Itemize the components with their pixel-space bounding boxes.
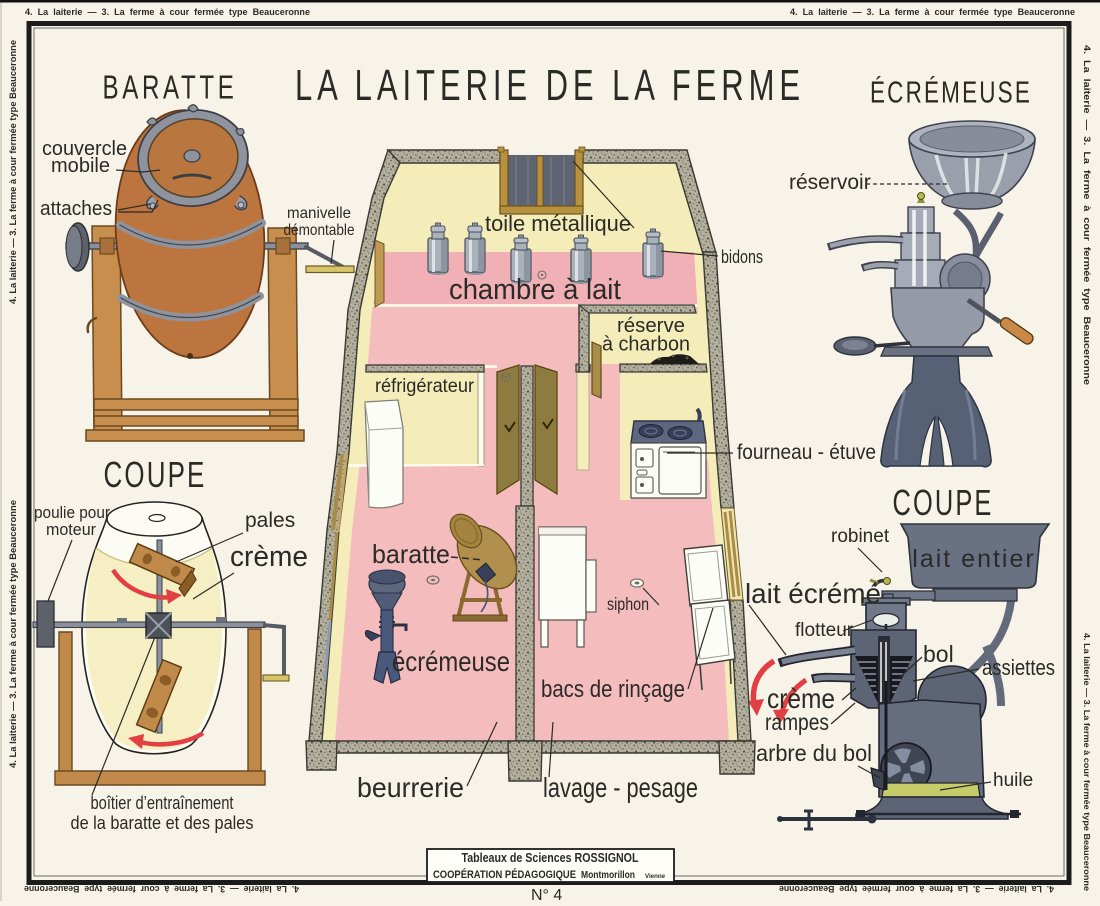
- svg-text:baratte: baratte: [372, 539, 450, 569]
- svg-text:pales: pales: [245, 509, 295, 532]
- svg-text:lavage - pesage: lavage - pesage: [543, 772, 698, 803]
- svg-text:boîtier d’entraînement: boîtier d’entraînement: [91, 793, 234, 813]
- svg-text:de la baratte et des pales: de la baratte et des pales: [71, 813, 254, 833]
- svg-text:4. La laiterie — 3. La ferme à: 4. La laiterie — 3. La ferme à cour ferm…: [1082, 633, 1091, 892]
- svg-text:manivelle: manivelle: [287, 205, 351, 222]
- svg-text:4. La laiterie — 3. La f: 4. La laiterie — 3. La ferme à cour ferm…: [779, 883, 1054, 894]
- svg-text:bol: bol: [923, 641, 954, 667]
- svg-text:COOPÉRATION PÉDAGOGIQUEMontmor: COOPÉRATION PÉDAGOGIQUEMontmorillonVienn…: [433, 868, 665, 881]
- svg-text:crème: crème: [230, 541, 308, 573]
- svg-text:robinet: robinet: [831, 526, 890, 547]
- svg-text:COUPE: COUPE: [893, 482, 994, 523]
- svg-text:lait écrémé: lait écrémé: [745, 578, 881, 609]
- svg-text:démontable: démontable: [284, 222, 355, 239]
- svg-text:COUPE: COUPE: [104, 454, 207, 495]
- svg-text:rampes: rampes: [765, 709, 829, 735]
- svg-text:attaches: attaches: [40, 198, 112, 220]
- svg-text:siphon: siphon: [607, 594, 649, 614]
- svg-text:N° 4: N° 4: [531, 887, 562, 901]
- svg-text:chambre à lait: chambre à lait: [449, 274, 621, 306]
- svg-text:4. La laiterie — 3. La f: 4. La laiterie — 3. La ferme à cour ferm…: [1081, 45, 1092, 385]
- svg-text:bidons: bidons: [721, 247, 763, 267]
- svg-text:réfrigérateur: réfrigérateur: [375, 375, 474, 397]
- svg-text:ÉCRÉMEUSE: ÉCRÉMEUSE: [870, 75, 1032, 110]
- svg-text:beurrerie: beurrerie: [357, 772, 464, 803]
- svg-text:réservoir: réservoir: [789, 171, 871, 194]
- svg-text:4. La laiterie — 3. La f: 4. La laiterie — 3. La ferme à cour ferm…: [25, 7, 310, 18]
- svg-text:moteur: moteur: [46, 520, 96, 539]
- svg-text:fourneau - étuve: fourneau - étuve: [737, 440, 876, 464]
- svg-text:toile métallique: toile métallique: [485, 211, 631, 236]
- svg-text:Tableaux de Sciences ROSSIGNOL: Tableaux de Sciences ROSSIGNOL: [462, 851, 639, 865]
- svg-text:huile: huile: [993, 770, 1033, 791]
- svg-text:mobile: mobile: [51, 155, 110, 177]
- svg-text:BARATTE: BARATTE: [103, 69, 238, 106]
- svg-text:4. La laiterie — 3. La ferme à: 4. La laiterie — 3. La ferme à cour ferm…: [8, 500, 19, 768]
- svg-text:bacs de rinçage: bacs de rinçage: [541, 676, 685, 703]
- svg-text:LA LAITERIE DE LA FERME: LA LAITERIE DE LA FERME: [295, 61, 805, 110]
- svg-text:assiettes: assiettes: [982, 655, 1055, 680]
- svg-text:4. La laiterie — 3. La ferme à: 4. La laiterie — 3. La ferme à cour ferm…: [8, 40, 19, 304]
- svg-text:4. La laiterie — 3. La f: 4. La laiterie — 3. La ferme à cour ferm…: [790, 7, 1075, 18]
- svg-text:arbre du bol: arbre du bol: [756, 740, 872, 766]
- svg-text:à charbon: à charbon: [602, 334, 690, 356]
- svg-text:4. La laiterie — 3. La f: 4. La laiterie — 3. La ferme à cour ferm…: [24, 883, 299, 894]
- svg-text:lait entier: lait entier: [912, 545, 1035, 573]
- svg-text:écrémeuse: écrémeuse: [392, 646, 510, 677]
